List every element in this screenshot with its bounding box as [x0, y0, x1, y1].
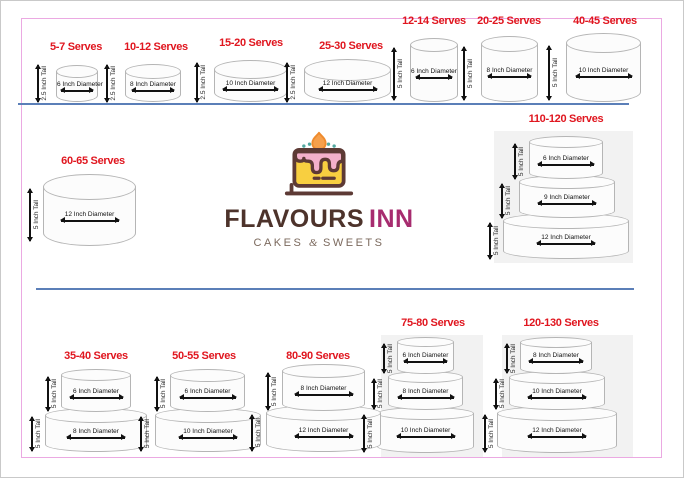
tagline-cakes: CAKES — [254, 237, 304, 249]
brand-name: FLAVOURSINN — [219, 205, 419, 234]
divider-line-top — [18, 103, 629, 105]
brand-name-secondary: INN — [369, 205, 414, 233]
brand-name-primary: FLAVOURS — [224, 205, 364, 233]
divider-line-middle — [36, 288, 634, 290]
brand-tagline: CAKES & SWEETS — [219, 237, 419, 249]
cake-logo-icon — [283, 127, 355, 203]
logo: FLAVOURSINN CAKES & SWEETS — [219, 127, 419, 249]
poster: FLAVOURSINN CAKES & SWEETS 5-7 Serves6 I… — [0, 0, 684, 478]
ampersand-ornament: & — [309, 237, 318, 249]
tagline-sweets: SWEETS — [323, 237, 384, 249]
